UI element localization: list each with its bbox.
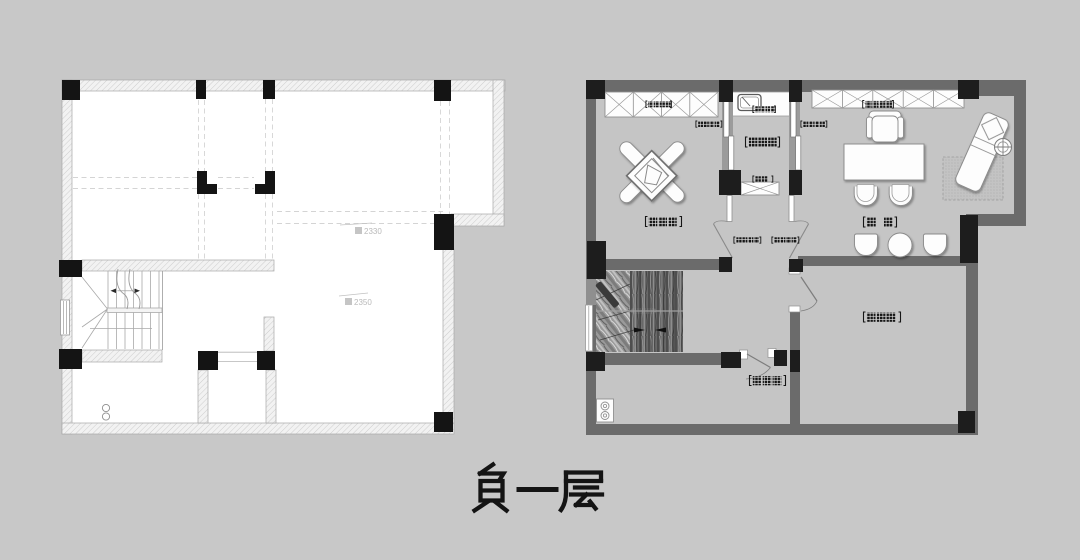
svg-text:2350: 2350 <box>354 298 372 307</box>
svg-text:2330: 2330 <box>364 227 382 236</box>
